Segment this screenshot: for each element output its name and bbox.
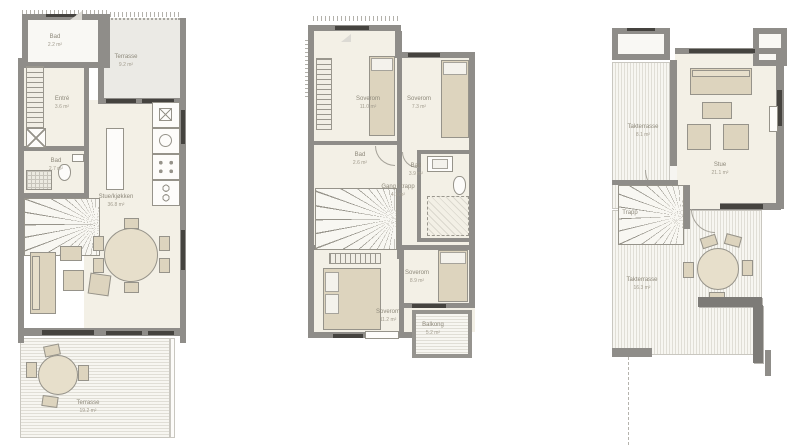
room-label: Soverom11.2 m² xyxy=(376,309,400,323)
wall xyxy=(469,52,475,308)
room-area: 3.9 m² xyxy=(409,171,423,177)
room-name: Bad xyxy=(50,34,61,40)
floor-plan-3: Takterrasse8.1 m² Stue21.1 m² Trapp Takt… xyxy=(605,20,795,380)
room-area: 2.2 m² xyxy=(48,42,62,48)
wall xyxy=(417,150,473,154)
sofa-cushion xyxy=(32,256,40,310)
tiled-floor xyxy=(26,170,52,190)
room-name: Bad xyxy=(51,158,62,164)
floor-plan-1: Bad2.2 m² Terrasse9.2 m² Entré3.6 m² Bad… xyxy=(18,10,188,440)
window-glass xyxy=(181,110,185,144)
window-glass xyxy=(148,331,174,335)
room-name: Soverom xyxy=(356,96,380,102)
tech-cabinet-icon xyxy=(26,128,46,148)
window-glass xyxy=(335,26,369,30)
chair xyxy=(26,362,37,378)
roof-hatch xyxy=(106,12,180,17)
sink-basin xyxy=(432,159,448,169)
room-label: Entré3.6 m² xyxy=(55,96,69,110)
room-label: Stue/kjøkken36.8 m² xyxy=(99,194,134,208)
wall xyxy=(180,18,186,343)
room-label: Bad2.6 m² xyxy=(353,152,367,166)
coffee-table xyxy=(702,102,732,119)
window-marker-icon xyxy=(70,11,82,20)
wardrobe xyxy=(329,253,381,264)
window-glass xyxy=(627,28,655,31)
wall xyxy=(765,350,771,376)
exterior-notch xyxy=(401,25,477,55)
wall xyxy=(417,238,473,242)
room-floor xyxy=(28,20,104,62)
oven-icon xyxy=(159,134,172,147)
room-label: Soverom8.9 m² xyxy=(405,270,429,284)
wall xyxy=(308,25,314,338)
room-label: Soverom11.0 m² xyxy=(356,96,380,110)
bed-pillow xyxy=(325,272,339,292)
window-glass xyxy=(689,49,755,53)
wall xyxy=(98,14,104,102)
room-label: Bad2.7 m² xyxy=(49,158,63,172)
chair xyxy=(683,262,694,278)
chair xyxy=(93,258,104,273)
armchair xyxy=(687,124,711,150)
bed-pillow xyxy=(325,294,339,314)
window-glass xyxy=(412,304,446,308)
room-label: Terrasse9.2 m² xyxy=(114,54,137,68)
chair xyxy=(93,236,104,251)
room-area: 4.1 m² xyxy=(381,192,414,198)
window-marker-icon xyxy=(341,34,351,42)
room-area: 36.8 m² xyxy=(99,202,134,208)
chair xyxy=(742,260,753,276)
dining-table xyxy=(104,228,158,282)
room-label: Takterrasse16.3 m² xyxy=(626,277,657,291)
wall xyxy=(314,141,402,145)
terrace-railing xyxy=(170,338,175,438)
room-area: 9.2 m² xyxy=(114,62,137,68)
terrace-table xyxy=(697,248,739,290)
bed-pillow xyxy=(371,58,393,71)
floor-plan-sheet: Bad2.2 m² Terrasse9.2 m² Entré3.6 m² Bad… xyxy=(0,0,800,447)
window-glass xyxy=(333,334,363,338)
wardrobe xyxy=(316,58,332,130)
chair xyxy=(124,218,139,229)
kitchen-island xyxy=(106,128,124,190)
room-name: Soverom xyxy=(407,96,431,102)
room-label: Stue21.1 m² xyxy=(712,162,729,176)
window-glass xyxy=(408,53,440,57)
sofa-cushion xyxy=(692,70,750,77)
room-name: Soverom xyxy=(405,270,429,276)
room-name: Bad xyxy=(355,152,366,158)
room-label: Bad3.9 m² xyxy=(409,163,423,177)
room-area: 2.7 m² xyxy=(49,166,63,172)
room-name: Takterrasse xyxy=(626,277,657,283)
room-area: 2.6 m² xyxy=(353,160,367,166)
bed-pillow xyxy=(443,62,467,75)
room-label: Terrasse19.2 m² xyxy=(76,400,99,414)
room-name: Stue xyxy=(714,162,726,168)
floor-plan-2: Soverom11.0 m² Soverom7.3 m² Bad2.6 m² G… xyxy=(305,10,477,358)
room-label: Takterrasse8.1 m² xyxy=(627,124,658,138)
bed-pillow xyxy=(440,252,466,264)
room-name: Bad xyxy=(411,163,422,169)
room-name: Entré xyxy=(55,96,69,102)
room-name: Stue/kjøkken xyxy=(99,194,134,200)
room-area: 11.0 m² xyxy=(356,104,380,110)
window-bay xyxy=(618,34,664,54)
stair-landing xyxy=(690,185,720,209)
terrace-table xyxy=(38,355,78,395)
room-label: Bad2.2 m² xyxy=(48,34,62,48)
room-area: 5.2 m² xyxy=(422,330,444,336)
room-name: Soverom xyxy=(376,309,400,315)
room-label: Soverom7.3 m² xyxy=(407,96,431,110)
wall xyxy=(84,62,89,198)
cooktop xyxy=(152,154,180,180)
room-area: 16.3 m² xyxy=(626,285,657,291)
wall xyxy=(397,31,402,141)
room-name: Balkong xyxy=(422,322,444,328)
chair xyxy=(159,236,170,251)
room-area: 8.9 m² xyxy=(405,278,429,284)
kitchen-appliance-icon xyxy=(159,108,172,121)
wall xyxy=(397,141,402,259)
chair xyxy=(124,282,139,293)
window-glass xyxy=(106,331,142,335)
toilet xyxy=(453,176,466,195)
sliding-door-glass xyxy=(42,330,94,335)
armchair xyxy=(88,273,112,297)
room-area: 7.3 m² xyxy=(407,104,431,110)
room-area: 11.2 m² xyxy=(376,317,400,323)
room-label: Balkong5.2 m² xyxy=(422,322,444,336)
window-glass xyxy=(106,99,136,103)
room-area: 21.1 m² xyxy=(712,170,729,176)
chair xyxy=(159,258,170,273)
kitchen-sink xyxy=(152,180,180,206)
side-table xyxy=(60,246,82,261)
room-name: Trapp xyxy=(622,210,637,216)
wall-fixture xyxy=(769,106,778,132)
window-sill xyxy=(365,331,399,339)
chair xyxy=(41,395,58,408)
room-name: Gang / trapp xyxy=(381,184,414,190)
roof-hatch xyxy=(313,16,399,21)
armchair xyxy=(63,270,84,291)
chair xyxy=(78,365,89,381)
wall xyxy=(612,348,652,357)
armchair xyxy=(723,124,749,150)
room-name: Terrasse xyxy=(114,54,137,60)
room-name: Takterrasse xyxy=(627,124,658,130)
room-label: Gang / trapp4.1 m² xyxy=(381,184,414,198)
room-area: 3.6 m² xyxy=(55,104,69,110)
boundary-dashed-line xyxy=(628,357,629,445)
shower xyxy=(427,196,469,236)
room-area: 8.1 m² xyxy=(627,132,658,138)
window-glass xyxy=(181,230,185,270)
room-name: Terrasse xyxy=(76,400,99,406)
room-label: Trapp xyxy=(622,210,637,218)
parapet-wall xyxy=(753,305,763,363)
sink xyxy=(72,154,84,162)
room-area: 19.2 m² xyxy=(76,408,99,414)
